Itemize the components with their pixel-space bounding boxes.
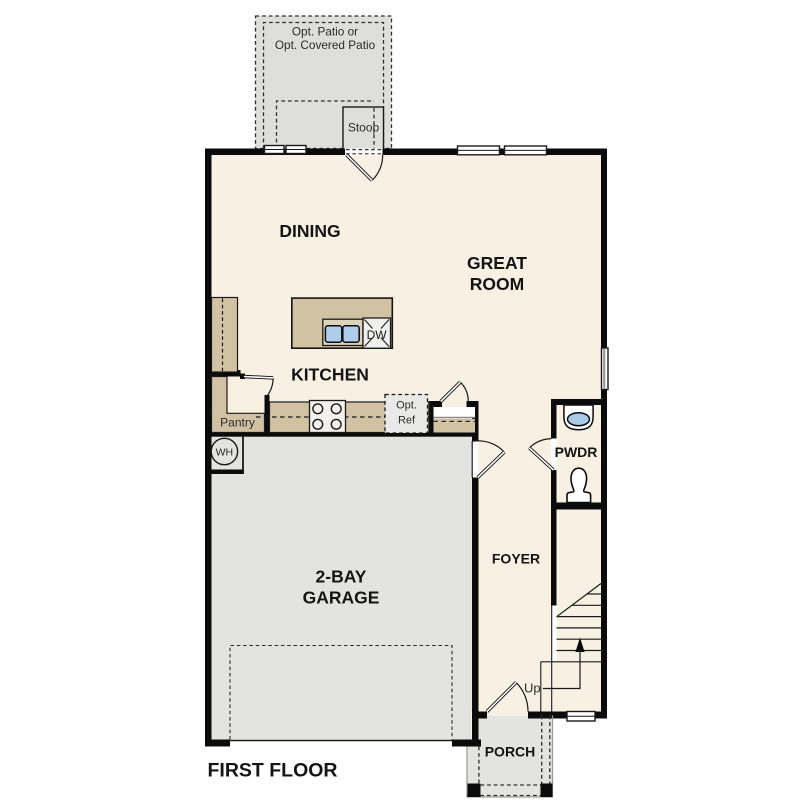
svg-text:Ref: Ref	[398, 415, 416, 427]
svg-text:FIRST FLOOR: FIRST FLOOR	[208, 760, 338, 782]
svg-text:ROOM: ROOM	[470, 274, 524, 294]
svg-text:GREAT: GREAT	[467, 253, 527, 273]
svg-text:Stoop: Stoop	[348, 121, 380, 135]
svg-text:FOYER: FOYER	[492, 551, 540, 567]
svg-text:KITCHEN: KITCHEN	[291, 365, 369, 385]
svg-text:DINING: DINING	[279, 221, 340, 241]
svg-text:WH: WH	[216, 447, 234, 459]
svg-text:Opt. Covered Patio: Opt. Covered Patio	[275, 38, 376, 52]
svg-text:PORCH: PORCH	[485, 744, 536, 760]
svg-text:DW: DW	[367, 328, 388, 342]
svg-text:GARAGE: GARAGE	[303, 588, 380, 608]
svg-text:Pantry: Pantry	[220, 416, 255, 430]
svg-text:Opt. Patio or: Opt. Patio or	[292, 24, 358, 38]
svg-text:PWDR: PWDR	[555, 444, 598, 460]
svg-text:2-BAY: 2-BAY	[316, 567, 367, 587]
svg-text:Opt.: Opt.	[396, 400, 417, 412]
svg-text:Up: Up	[524, 681, 541, 696]
